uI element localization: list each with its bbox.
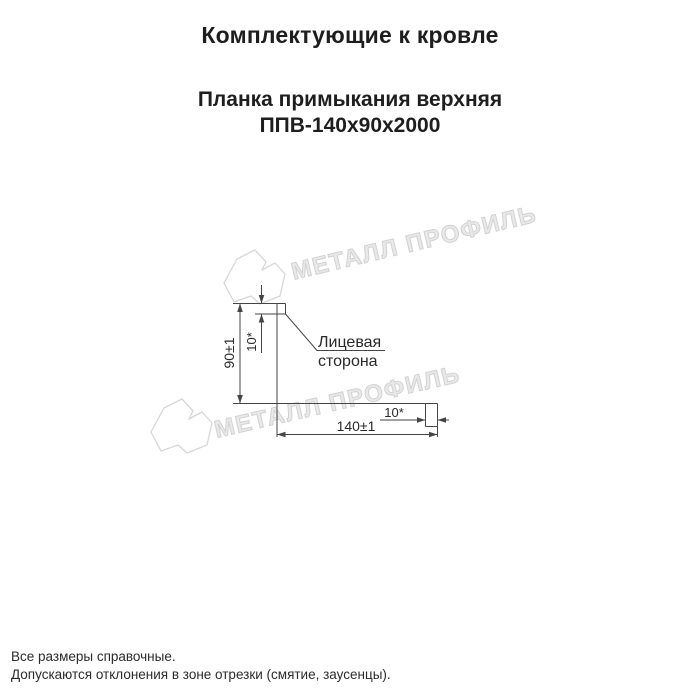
face-side-label-line2: сторона bbox=[318, 353, 378, 370]
product-code: ППВ-140х90х2000 bbox=[0, 113, 700, 139]
logo-watermark-upper-icon bbox=[224, 250, 285, 304]
product-subtitle: Планка примыкания верхняя ППВ-140х90х200… bbox=[0, 87, 700, 139]
hem-top-dim-label: 10* bbox=[244, 332, 259, 352]
watermark-text-upper: МЕТАЛЛ ПРОФИЛЬ bbox=[289, 201, 540, 287]
leader-line bbox=[286, 314, 386, 351]
watermark-text-lower: МЕТАЛЛ ПРОФИЛЬ bbox=[212, 361, 463, 445]
footer-note-1: Все размеры справочные. bbox=[11, 648, 691, 666]
dim-width-label: 140±1 bbox=[337, 418, 376, 434]
footer-notes: Все размеры справочные. Допускаются откл… bbox=[11, 648, 691, 684]
hem-end-dim-label: 10* bbox=[384, 405, 404, 420]
logo-watermark-lower-icon bbox=[151, 399, 212, 453]
footer-note-2: Допускаются отклонения в зоне отрезки (с… bbox=[11, 666, 691, 684]
page-title: Комплектующие к кровле bbox=[0, 22, 700, 49]
face-side-label-line1: Лицевая bbox=[318, 334, 381, 351]
product-name: Планка примыкания верхняя bbox=[0, 87, 700, 113]
dim-height-label: 90±1 bbox=[221, 337, 237, 368]
